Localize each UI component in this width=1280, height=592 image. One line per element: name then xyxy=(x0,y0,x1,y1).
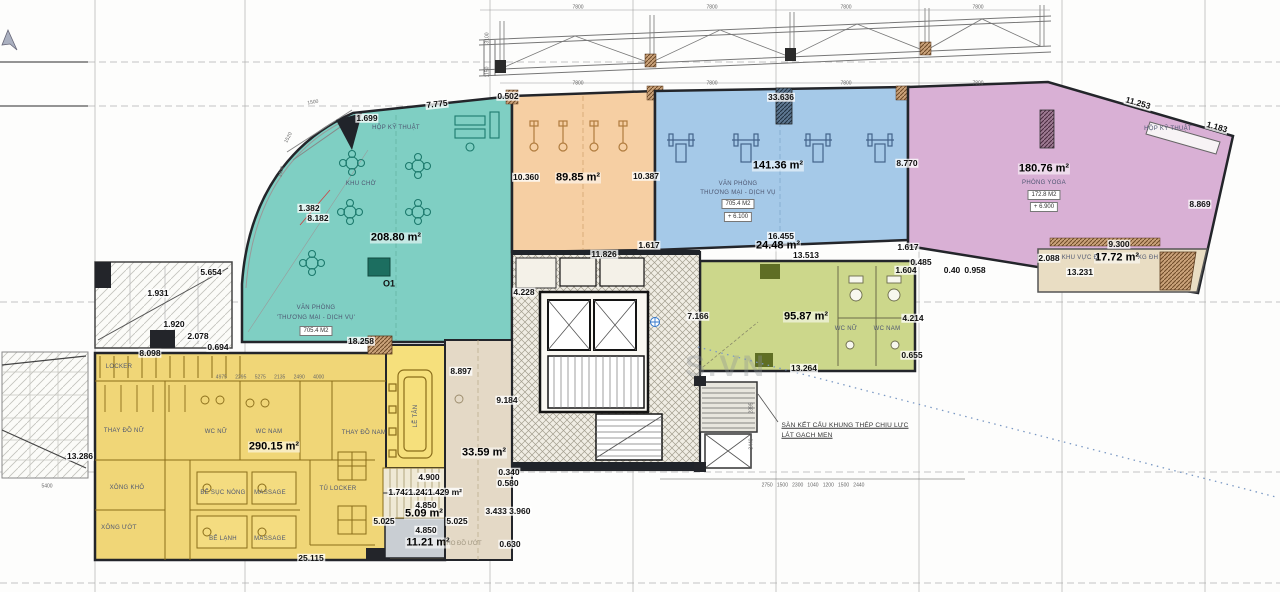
core-stair-icon xyxy=(548,356,644,408)
sprinkler-icon xyxy=(650,317,660,327)
corridor xyxy=(445,340,512,560)
north-arrow-icon xyxy=(2,30,17,50)
bottom-stair-icon xyxy=(596,414,662,460)
core xyxy=(512,250,700,470)
zone-waiting-office xyxy=(242,96,512,342)
zone-green-wc xyxy=(700,261,915,371)
stair-upper-left xyxy=(95,262,232,348)
stair-east xyxy=(694,376,757,472)
west-structure xyxy=(2,352,88,478)
zone-yoga xyxy=(908,82,1233,293)
zone-gym xyxy=(506,86,663,252)
floor-plan: 7.7751.6990.50233.63611.2531.1831.3828.1… xyxy=(0,0,1280,592)
zone-office-blue xyxy=(655,86,910,250)
plan-graphics xyxy=(0,0,1280,592)
truss-canopy xyxy=(479,5,1051,83)
